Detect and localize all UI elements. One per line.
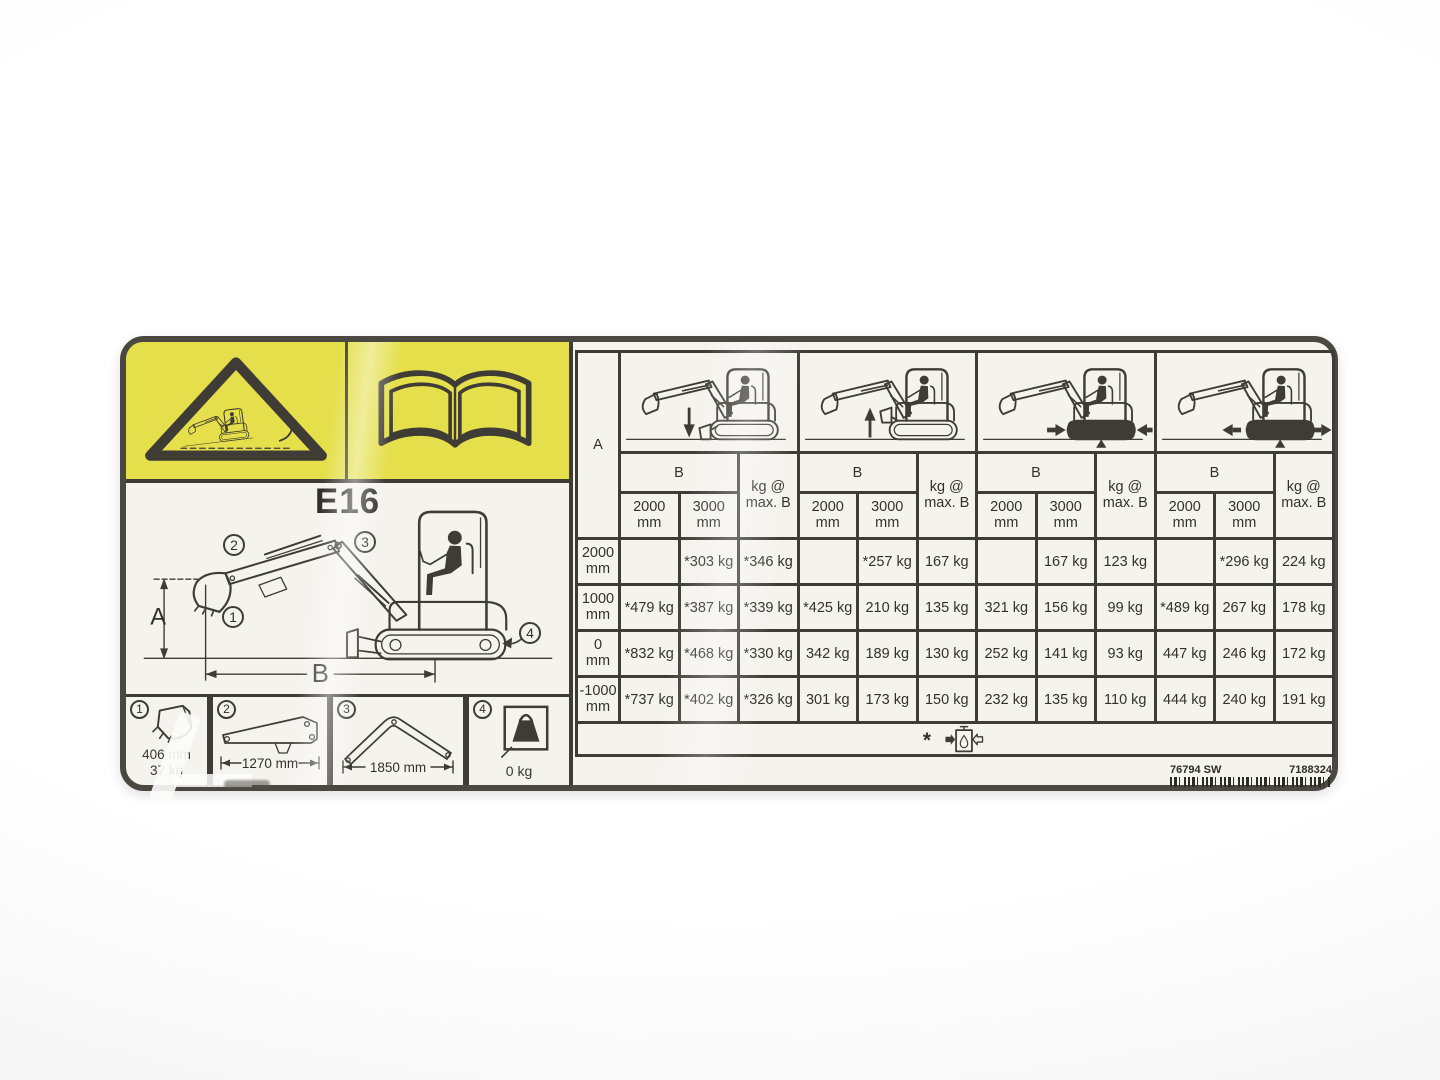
capacity-cell: 135 kg [917,585,977,631]
height-row-header: -1000mm [577,677,620,723]
component-counterweight-box: 4 0 kg [466,694,569,785]
excavator-dimension-drawing: A B [134,508,564,686]
capacity-cell: 246 kg [1215,631,1275,677]
capacity-cell: *296 kg [1215,539,1275,585]
capacity-cell: *330 kg [739,631,799,677]
kg-header-line2: max. B [740,496,797,512]
capacity-cell: 267 kg [1215,585,1275,631]
capacity-cell: 172 kg [1274,631,1334,677]
counterweight-icon [499,703,551,759]
capacity-cell [1155,539,1215,585]
capacity-cell: 224 kg [1274,539,1334,585]
reach-2000-header: 2000mm [798,493,858,539]
component-boom-box: 3 1850 mm [330,694,466,785]
arm-icon: 1270 mm [215,701,325,777]
arm-length: 1270 mm [242,756,298,771]
reach-3000-header: 3000mm [679,493,739,539]
capacity-cell: 130 kg [917,631,977,677]
b-header: B [620,453,739,493]
reach-2000-header: 2000mm [1155,493,1215,539]
capacity-cell: *832 kg [620,631,680,677]
b-header-row: B kg @ max. B B kg @ max. B B kg @ max. … [577,453,1334,493]
barcode [1170,777,1332,787]
capacity-cell: *326 kg [739,677,799,723]
kg-header-line1: kg @ [740,480,797,496]
capacity-cell: *468 kg [679,631,739,677]
reach-3000-header: 3000mm [858,493,918,539]
capacity-cell [620,539,680,585]
capacity-cell: 240 kg [1215,677,1275,723]
pictogram-blade-down [620,352,799,453]
capacity-cell: 99 kg [1096,585,1156,631]
capacity-cell: *402 kg [679,677,739,723]
tipping-warning-icon [140,348,332,472]
capacity-cell: 178 kg [1274,585,1334,631]
capacity-cell: 444 kg [1155,677,1215,723]
footnote-row: * [577,723,1334,756]
capacity-cell: 123 kg [1096,539,1156,585]
pictogram-tracks-extended [1155,352,1334,453]
capacity-cell: 167 kg [917,539,977,585]
counterweight-mass: 0 kg [469,763,569,780]
capacity-cell: *339 kg [739,585,799,631]
kg-max-b-header: kg @ max. B [1274,453,1334,539]
capacity-cell: 189 kg [858,631,918,677]
capacity-cell: 173 kg [858,677,918,723]
capacity-row-2000: 2000mm *303 kg *346 kg *257 kg 167 kg 16… [577,539,1334,585]
component-arm-box: 2 1270 mm [210,694,330,785]
kg-max-b-header: kg @ max. B [739,453,799,539]
capacity-cell [798,539,858,585]
boom-icon: 1850 mm [335,701,461,777]
component-4-number: 4 [473,700,492,719]
reach-3000-header: 3000mm [1036,493,1096,539]
part-number-left: 76794 SW [1170,764,1221,776]
capacity-cell: 301 kg [798,677,858,723]
capacity-cell: *425 kg [798,585,858,631]
b-header: B [977,453,1096,493]
height-row-header: 1000mm [577,585,620,631]
capacity-cell: 252 kg [977,631,1037,677]
kg-max-b-header: kg @ max. B [1096,453,1156,539]
part-number-right: 7188324 [1289,764,1332,776]
capacity-row-minus-1000: -1000mm *737 kg *402 kg *326 kg 301 kg 1… [577,677,1334,723]
capacity-cell: *489 kg [1155,585,1215,631]
capacity-cell: 156 kg [1036,585,1096,631]
reach-2000-header: 2000mm [977,493,1037,539]
height-row-header: 2000mm [577,539,620,585]
pictogram-blade-up [798,352,977,453]
dim-a-label: A [150,605,166,631]
capacity-decal: E16 [120,336,1338,791]
lift-capacity-table: A [575,350,1335,757]
capacity-cell: 167 kg [1036,539,1096,585]
part-number-block: 76794 SW 7188324 [1170,764,1332,787]
b-header: B [798,453,917,493]
b-header: B [1155,453,1274,493]
capacity-cell: *303 kg [679,539,739,585]
capacity-cell: *479 kg [620,585,680,631]
capacity-cell: 321 kg [977,585,1037,631]
capacity-cell: *346 kg [739,539,799,585]
capacity-cell: *257 kg [858,539,918,585]
capacity-cell [977,539,1037,585]
footnote-asterisk: * [923,729,931,753]
photo-background: { "colors":{ "warning_yellow":"#e4df4a",… [0,0,1440,1080]
reach-3000-header: 3000mm [1215,493,1275,539]
capacity-cell: 191 kg [1274,677,1334,723]
column-header-a: A [577,352,620,539]
kg-max-b-header: kg @ max. B [917,453,977,539]
capacity-cell: 210 kg [858,585,918,631]
capacity-cell: *387 kg [679,585,739,631]
smudge-artifact [224,780,270,789]
capacity-cell: 110 kg [1096,677,1156,723]
capacity-cell: 93 kg [1096,631,1156,677]
callout-4: 4 [519,622,541,644]
reach-2000-header: 2000mm [620,493,680,539]
capacity-cell: 447 kg [1155,631,1215,677]
capacity-row-0: 0mm *832 kg *468 kg *330 kg 342 kg 189 k… [577,631,1334,677]
capacity-cell: *737 kg [620,677,680,723]
capacity-row-1000: 1000mm *479 kg *387 kg *339 kg *425 kg 2… [577,585,1334,631]
callout-1: 1 [222,606,244,628]
dim-b-label: B [312,660,329,686]
pictogram-tracks-retracted [977,352,1156,453]
capacity-cell: 232 kg [977,677,1037,723]
capacity-cell: 135 kg [1036,677,1096,723]
callout-3: 3 [354,531,376,553]
capacity-cell: 342 kg [798,631,858,677]
boom-length: 1850 mm [370,760,426,775]
read-manual-book-icon [370,352,540,468]
footnote-cell: * [577,723,1334,756]
callout-2: 2 [223,534,245,556]
capacity-cell: 150 kg [917,677,977,723]
capacity-cell: 141 kg [1036,631,1096,677]
panel-divider [345,342,348,479]
height-row-header: 0mm [577,631,620,677]
pictogram-row: A [577,352,1334,453]
section-divider [569,342,573,785]
hydraulic-limit-icon [941,724,987,754]
